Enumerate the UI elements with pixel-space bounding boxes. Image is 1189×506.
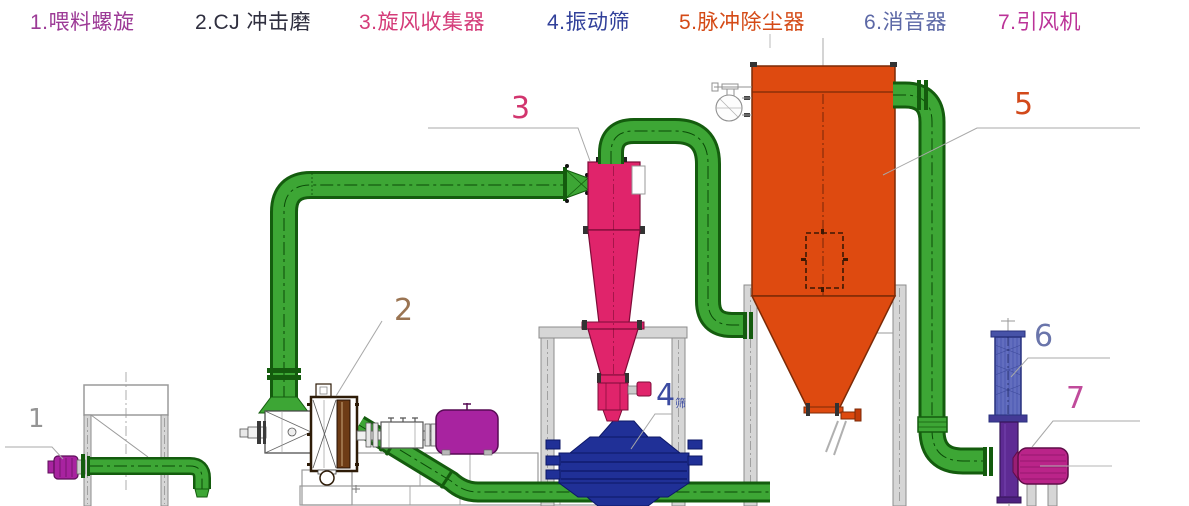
callout-5-num: 5	[1014, 87, 1033, 122]
callout-7-num: 7	[1066, 381, 1085, 416]
fan-legs	[1027, 484, 1057, 506]
mill-riser-pipe	[259, 164, 589, 413]
callout-4: 4筛	[656, 381, 686, 411]
legend-item-vibrating-screen: 4.振动筛	[547, 6, 630, 36]
callout-6-num: 6	[1034, 319, 1053, 354]
callout-4-num: 4	[656, 378, 675, 413]
callout-1: 1	[28, 406, 45, 432]
callout-6: 6	[1034, 322, 1053, 352]
pulse-valve-gauge	[712, 83, 752, 121]
system-diagram	[0, 0, 1189, 506]
callout-3-num: 3	[511, 91, 530, 126]
callout-3: 3	[511, 94, 530, 124]
legend-item-impact-mill: 2.CJ 冲击磨	[195, 6, 311, 36]
feed-screw-motor	[48, 456, 85, 479]
callout-7: 7	[1066, 384, 1085, 414]
induced-draft-fan	[1013, 448, 1112, 484]
legend-item-feed-screw: 1.喂料螺旋	[30, 6, 135, 36]
feed-screw-pipe	[81, 454, 209, 497]
mill-inlet-housing	[265, 411, 311, 453]
collector-outlet-valve	[804, 403, 861, 455]
legend-item-fan: 7.引风机	[998, 6, 1081, 36]
callout-1-num: 1	[28, 404, 45, 434]
rotary-valve	[597, 373, 651, 421]
callout-2: 2	[394, 296, 413, 326]
callout-leaders	[5, 34, 1140, 459]
feed-hopper	[84, 372, 168, 506]
mill-casing	[307, 384, 359, 485]
mill-motor	[436, 403, 498, 455]
collector-outlet-pipe	[893, 80, 993, 476]
legend-item-cyclone-collector: 3.旋风收集器	[359, 6, 485, 36]
diagram-page: 1.喂料螺旋 2.CJ 冲击磨 3.旋风收集器 4.振动筛 5.脉冲除尘器 6.…	[0, 0, 1189, 506]
legend-item-muffler: 6.消音器	[864, 6, 947, 36]
pulse-dust-collector	[712, 38, 897, 455]
muffler	[989, 318, 1027, 422]
callout-5: 5	[1014, 90, 1033, 120]
cyclone-collector	[582, 157, 651, 421]
legend-item-dust-collector: 5.脉冲除尘器	[679, 6, 805, 36]
callout-4-suffix: 筛	[675, 397, 686, 410]
mill-left-shaft	[240, 421, 266, 444]
callout-2-num: 2	[394, 293, 413, 328]
